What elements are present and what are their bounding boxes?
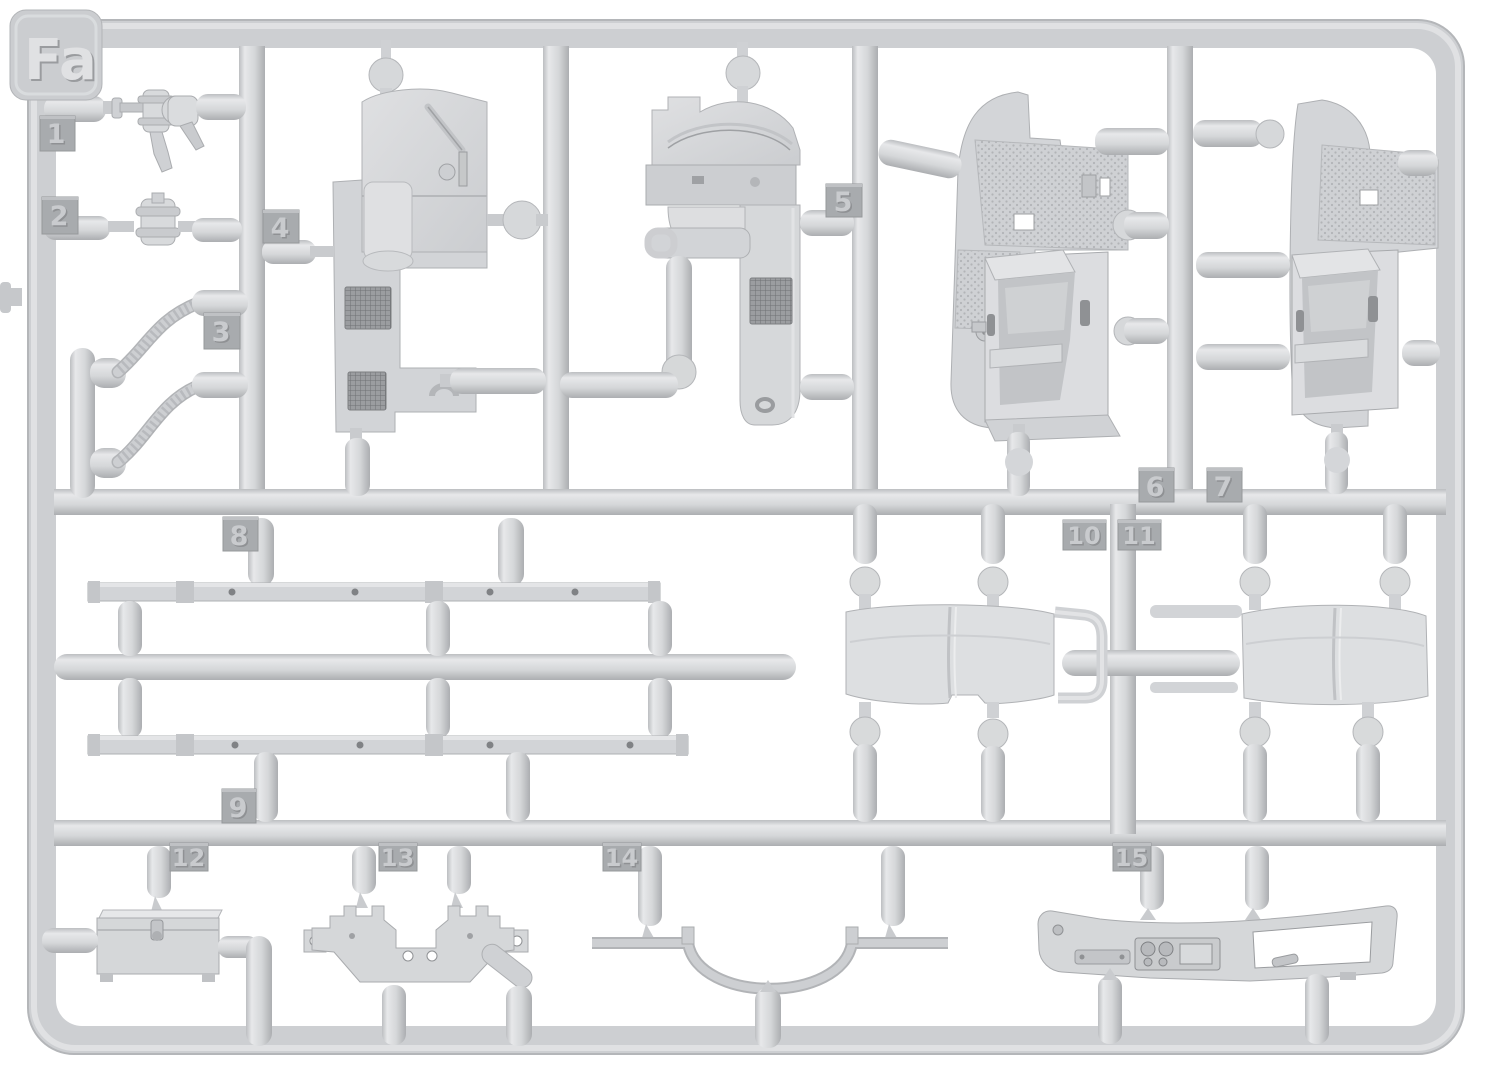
sprue-canvas: Fa Fa 1 1 2 2 3 3 4 4 5 5: [0, 0, 1500, 1076]
gate-stub: [560, 372, 678, 398]
gate-stub: [254, 752, 278, 822]
part-tag-4: 4 4: [263, 210, 299, 246]
gate-stub: [118, 678, 142, 738]
gate-stub: [638, 846, 662, 926]
cowl-deck: [646, 165, 796, 205]
gate-stub: [450, 368, 546, 394]
gate-stub: [755, 988, 781, 1048]
svg-text:1: 1: [47, 119, 66, 150]
mesh-grille: [348, 372, 386, 410]
part-tag-15: 15 15: [1113, 843, 1151, 874]
gate-stub: [648, 601, 672, 656]
part-tag-2: 2 2: [42, 197, 78, 234]
svg-text:14: 14: [605, 844, 638, 872]
svg-text:6: 6: [1146, 472, 1165, 503]
sprue-id-tab: Fa Fa: [10, 10, 102, 100]
gate-stub: [426, 678, 450, 738]
gate-stub: [345, 438, 370, 496]
part-tag-7: 7 7: [1207, 468, 1242, 505]
gate-stub: [1398, 150, 1438, 176]
seat-frame-tube-upper: [1150, 605, 1242, 618]
svg-text:7: 7: [1214, 472, 1233, 503]
gate-stub: [506, 752, 530, 822]
svg-text:2: 2: [50, 201, 69, 232]
seat-frame-tube-lower: [1150, 682, 1238, 693]
gate-stub: [1124, 318, 1169, 344]
gate-stub: [1245, 846, 1269, 910]
part-tag-5: 5 5: [826, 184, 862, 220]
part-tag-10: 10 10: [1063, 520, 1106, 552]
sprue-photo: Fa Fa 1 1 2 2 3 3 4 4 5 5: [0, 0, 1500, 1076]
runner-vertical-2: [543, 46, 569, 504]
svg-text:3: 3: [212, 317, 231, 348]
part-tag-1: 1 1: [40, 116, 75, 152]
gate-stub: [1196, 252, 1290, 278]
part-tag-11: 11 11: [1118, 520, 1161, 552]
tank-cylinder: [364, 182, 412, 260]
gate-stub: [352, 846, 376, 894]
gate-stub: [1095, 128, 1169, 155]
gate-stub: [1124, 212, 1169, 239]
gate-stub: [800, 374, 854, 400]
gate-stub: [1196, 344, 1290, 370]
part-tag-8: 8 8: [223, 517, 258, 554]
gate-stub: [196, 94, 246, 120]
runner-vertical-4: [1167, 46, 1193, 504]
gate-stub: [881, 846, 905, 926]
runner-horizontal-middle: [54, 654, 796, 680]
mesh-grille: [345, 287, 391, 329]
svg-text:5: 5: [834, 187, 853, 218]
svg-text:12: 12: [172, 844, 205, 872]
svg-text:4: 4: [271, 213, 290, 244]
gate-stub: [1402, 340, 1440, 366]
part-tag-14: 14 14: [603, 843, 641, 874]
svg-text:8: 8: [230, 521, 249, 552]
svg-text:9: 9: [229, 793, 248, 824]
part-tag-3: 3 3: [204, 313, 240, 350]
gate-ball: [503, 201, 541, 239]
part-tag-6: 6 6: [1139, 468, 1174, 505]
gate-stub: [1193, 120, 1263, 147]
runner-horizontal-lower: [54, 820, 1446, 846]
gate-stub: [192, 218, 242, 242]
gate-stub: [447, 846, 471, 894]
gate-stub: [1098, 976, 1122, 1044]
svg-text:13: 13: [381, 844, 414, 872]
gate-stub: [506, 986, 532, 1046]
svg-text:10: 10: [1067, 522, 1100, 550]
gate-stub: [118, 601, 142, 656]
toolbox-lid: [99, 910, 222, 918]
corner-runner: [246, 936, 272, 1046]
part-tag-9: 9 9: [222, 789, 256, 826]
gate-stub: [498, 518, 524, 586]
gate-stub: [42, 928, 98, 953]
svg-text:11: 11: [1122, 522, 1155, 550]
mesh-grille: [750, 278, 792, 324]
gate-stub: [382, 985, 406, 1045]
gate-stub: [192, 290, 248, 316]
gate-stub: [147, 846, 171, 898]
gate-stub: [648, 678, 672, 738]
gate-stub: [426, 601, 450, 656]
gate-stub: [1305, 974, 1329, 1044]
runner-vertical-3: [852, 46, 878, 504]
part-tag-13: 13 13: [379, 843, 417, 874]
part-tag-12: 12 12: [170, 843, 208, 874]
gate-stub: [192, 372, 248, 398]
sprue-id-label: Fa: [24, 28, 97, 93]
svg-text:15: 15: [1115, 844, 1148, 872]
runner-seat-cross-arm: [1062, 650, 1240, 676]
